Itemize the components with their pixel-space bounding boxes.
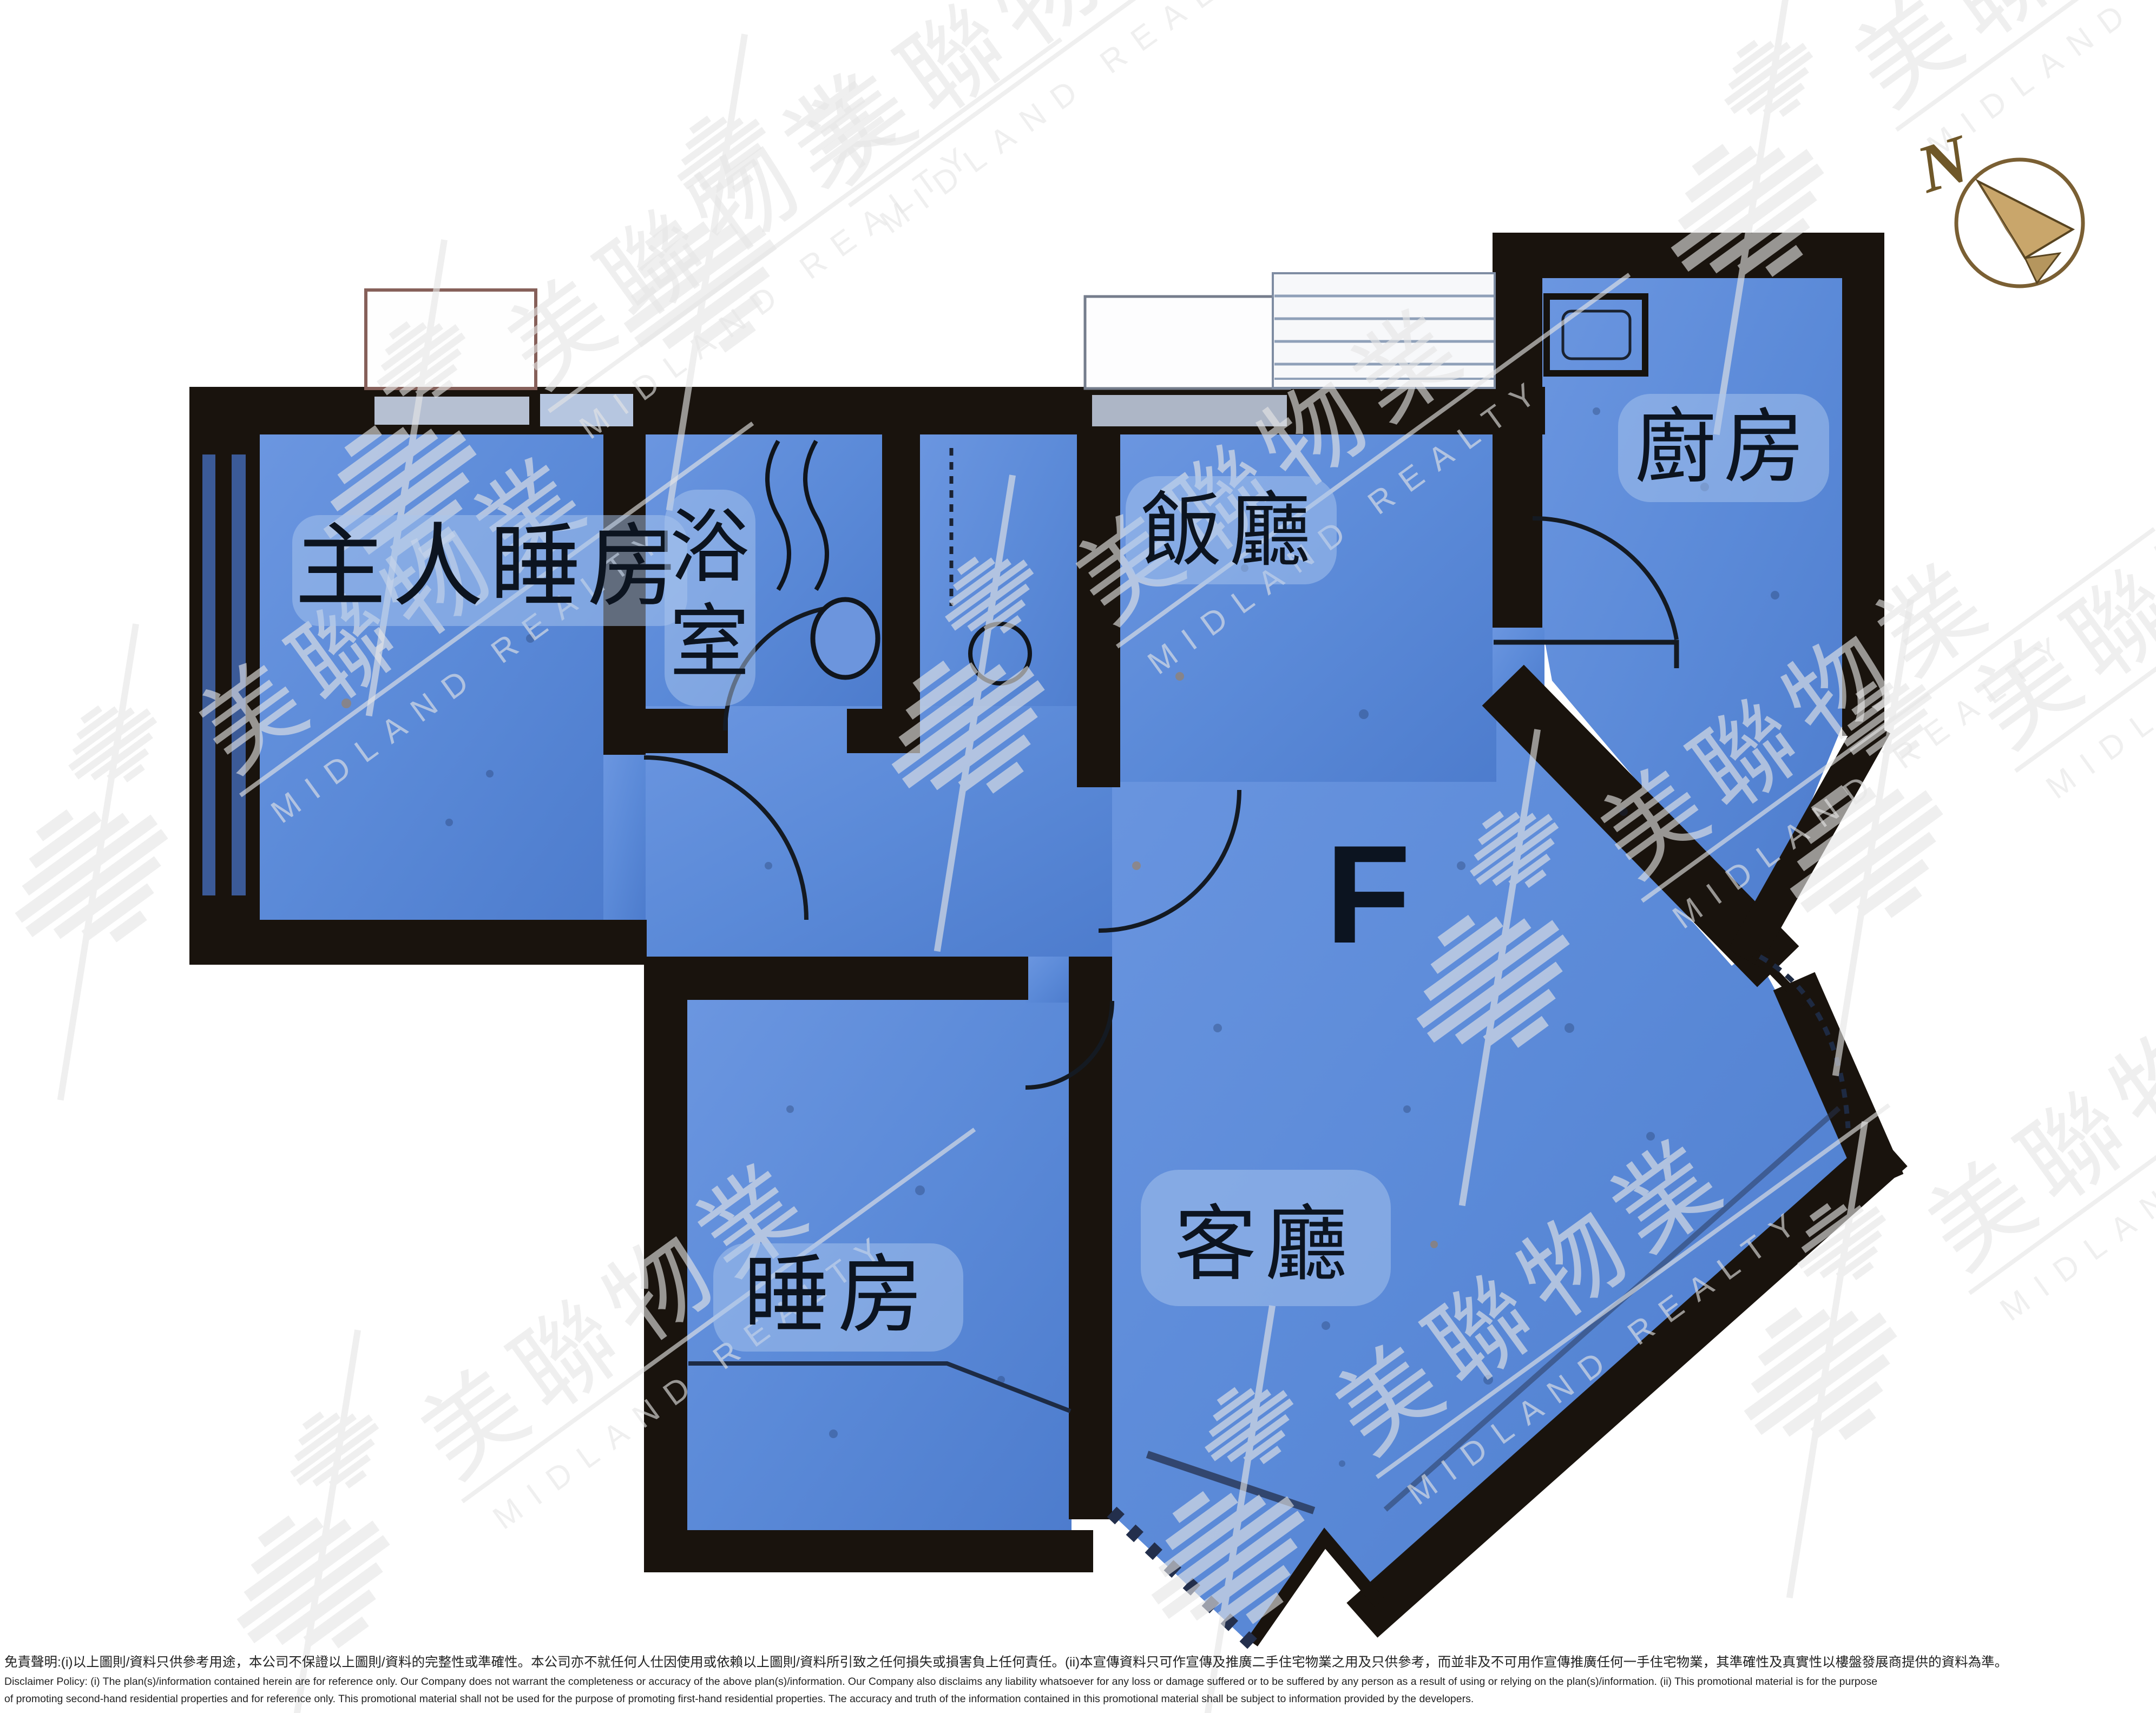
speckle-dot [1771,591,1779,599]
disclaimer-line-english-2: of promoting second-hand residential pro… [4,1693,1474,1705]
speckle-dot [1565,1023,1574,1033]
wall-segment [189,920,647,965]
wall-segment [1069,957,1112,1519]
speckle-dot [997,1376,1005,1383]
speckle-dot [1403,1105,1411,1113]
window-slit [202,454,215,895]
label-kitchen: 廚房 [1635,401,1812,492]
disclaimer-line-english-1: Disclaimer Policy: (i) The plan(s)/infor… [4,1676,1877,1688]
speckle-dot [1132,861,1141,870]
label-master-bedroom: 主人睡房 [295,516,685,617]
compass-arrow-icon [1978,181,2073,258]
label-dining-room: 飯廳 [1141,485,1318,576]
compass-arrow-icon [2025,253,2060,283]
speckle-dot [1339,1460,1345,1467]
label-bedroom: 睡房 [744,1248,932,1343]
wall-segment [644,1530,1093,1572]
speckle-dot [1213,1024,1222,1032]
label-unit: F [1325,816,1411,972]
speckle-dot [786,1105,794,1113]
label-bathroom-char2: 室 [669,598,750,687]
speckle-dot [1457,861,1465,870]
door-gap-master [603,755,646,920]
speckle-dot [486,770,494,778]
speckle-dot [915,1185,925,1195]
wall-segment [603,709,728,753]
label-bathroom-char1: 浴 [669,503,750,592]
wall-segment [882,387,920,753]
floor-plan: 美聯物業MIDLAND REALTY美聯物業MIDLAND REALTY美聯物業… [0,0,2156,1713]
disclaimer: 免責聲明:(i)以上圖則/資料只供參考用途，本公司不保證以上圖則/資料的完整性或… [4,1655,2008,1705]
toilet [813,599,878,677]
door-gap-bedroom [1026,957,1072,1003]
speckle-dot [765,862,772,869]
speckle-dot [1175,672,1184,681]
bay-window-outline [1085,297,1290,388]
speckle-dot [829,1429,838,1438]
disclaimer-line-chinese: 免責聲明:(i)以上圖則/資料只供參考用途，本公司不保證以上圖則/資料的完整性或… [4,1655,2008,1670]
label-living-room: 客廳 [1174,1198,1356,1290]
north-compass: N [1908,121,2083,286]
speckle-dot [1430,1241,1438,1248]
speckle-dot [1322,1321,1330,1330]
speckle-dot [1593,407,1600,415]
speckle-dot [1359,709,1369,719]
speckle-dot [445,819,453,826]
window-slit [374,397,529,425]
wall-segment [644,957,1028,1000]
